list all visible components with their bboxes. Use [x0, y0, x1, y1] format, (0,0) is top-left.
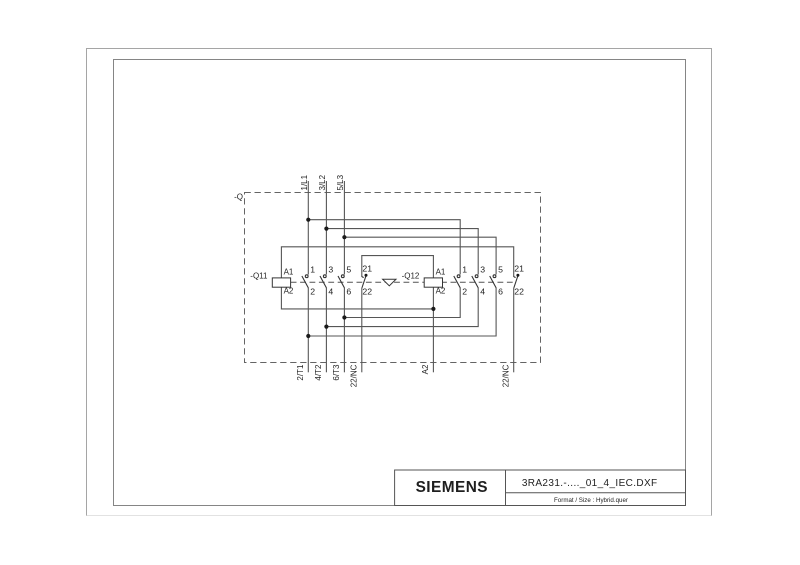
- svg-text:1: 1: [310, 265, 315, 275]
- svg-text:2/T1: 2/T1: [296, 364, 305, 381]
- svg-text:A1: A1: [436, 267, 446, 276]
- svg-text:1: 1: [462, 265, 467, 275]
- svg-text:3: 3: [480, 265, 485, 275]
- svg-text:5: 5: [346, 265, 351, 275]
- svg-text:4: 4: [328, 286, 333, 296]
- svg-text:2: 2: [462, 286, 467, 296]
- svg-text:A2: A2: [436, 287, 446, 296]
- svg-text:4: 4: [480, 286, 485, 296]
- svg-text:5/L3: 5/L3: [336, 174, 345, 190]
- svg-text:Format / Size : Hybrid.quer: Format / Size : Hybrid.quer: [554, 497, 628, 504]
- svg-text:5: 5: [498, 265, 503, 275]
- svg-text:22: 22: [514, 286, 524, 296]
- svg-text:SIEMENS: SIEMENS: [416, 479, 488, 496]
- svg-text:4/T2: 4/T2: [314, 364, 323, 381]
- svg-text:22: 22: [362, 286, 372, 296]
- svg-text:2: 2: [310, 286, 315, 296]
- svg-text:3RA231.-...._01_4_IEC.DXF: 3RA231.-...._01_4_IEC.DXF: [522, 478, 658, 489]
- svg-text:A1: A1: [284, 267, 294, 276]
- svg-text:A2: A2: [421, 364, 430, 374]
- svg-text:6: 6: [346, 286, 351, 296]
- svg-text:A2: A2: [284, 287, 294, 296]
- svg-text:6/T3: 6/T3: [332, 364, 341, 381]
- svg-text:6: 6: [498, 286, 503, 296]
- svg-text:3/L2: 3/L2: [318, 174, 327, 190]
- svg-text:1/L1: 1/L1: [300, 174, 309, 190]
- svg-text:-Q11: -Q11: [250, 271, 268, 280]
- svg-text:21: 21: [514, 263, 524, 273]
- svg-text:22/NC: 22/NC: [350, 364, 359, 387]
- svg-text:21: 21: [362, 263, 372, 273]
- svg-text:22/NC: 22/NC: [502, 364, 511, 387]
- svg-text:3: 3: [328, 265, 333, 275]
- svg-text:-Q12: -Q12: [402, 271, 420, 280]
- svg-text:-Q: -Q: [234, 193, 243, 202]
